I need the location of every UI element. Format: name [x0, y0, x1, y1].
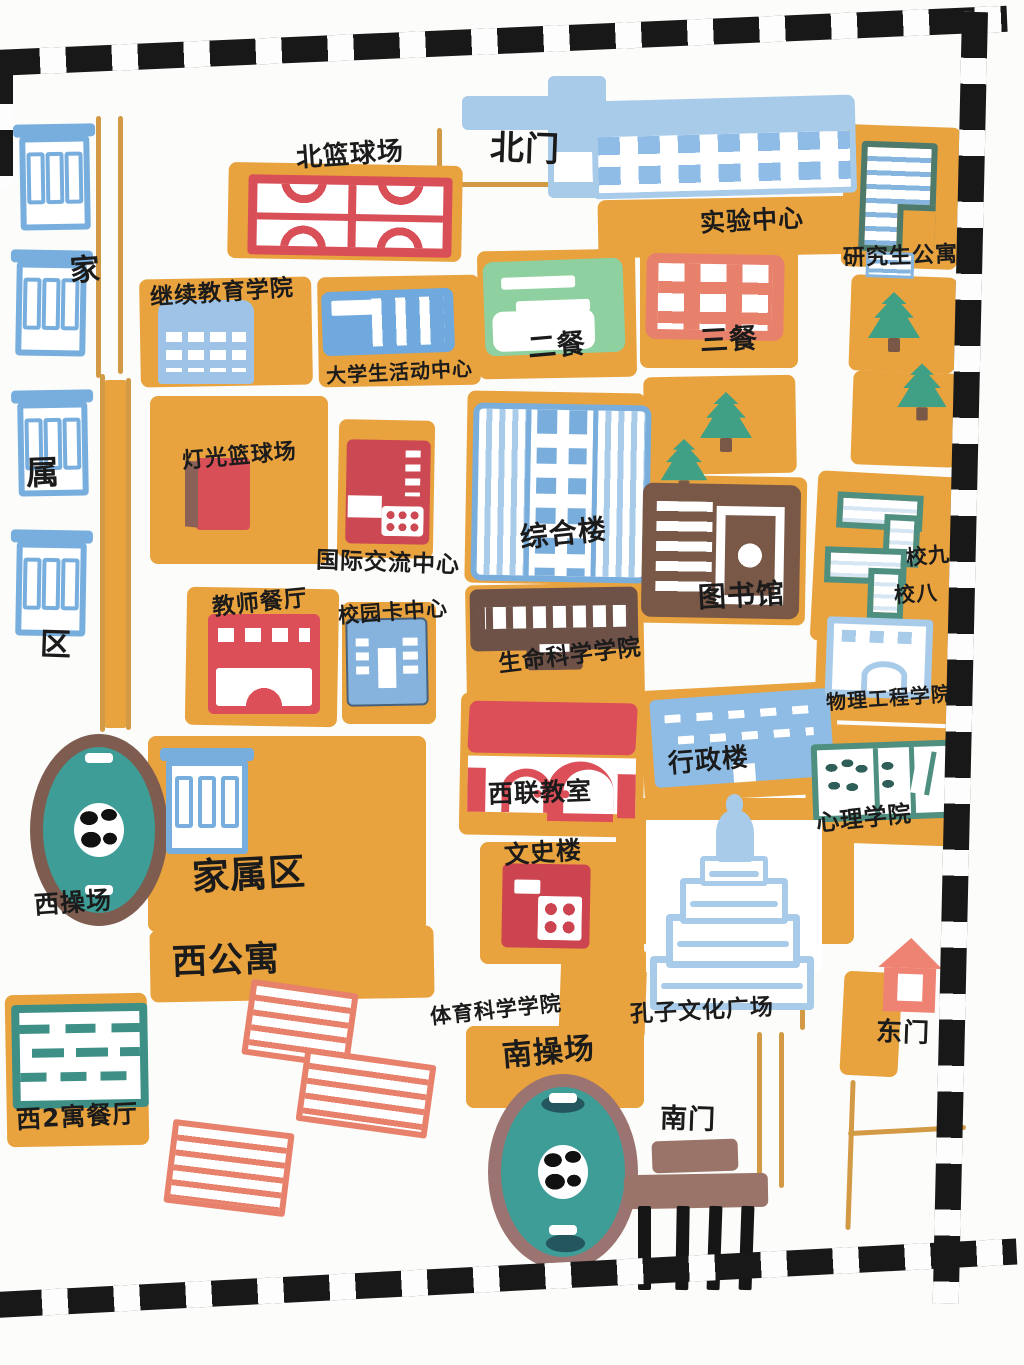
wenshi-building — [501, 863, 590, 949]
window — [65, 152, 84, 204]
label-north-gate: 北门 — [489, 131, 560, 167]
campus-card-building — [347, 619, 426, 704]
tree — [700, 392, 752, 452]
window — [22, 558, 41, 610]
road-median — [105, 380, 126, 728]
label-sports-science: 体育科学学院 — [429, 993, 562, 1028]
campus-map: 北篮球场 北门 实验中心 研究生公寓 继续教育学院 大学生活动中心 二餐 三餐 … — [0, 0, 1024, 1365]
gate-roof — [651, 1139, 738, 1174]
road — [757, 1032, 762, 1194]
window — [45, 152, 64, 204]
tree-crown — [868, 292, 920, 338]
label-administration: 行政楼 — [667, 745, 750, 778]
north-basketball-court — [247, 174, 452, 258]
label-west-union: 西联教室 — [488, 778, 593, 807]
label-west-apartments: 西公寓 — [171, 942, 280, 981]
tree-trunk — [916, 407, 927, 420]
label-dorm9: 校九 — [905, 544, 951, 569]
gate-roof — [878, 937, 943, 969]
tree — [897, 364, 946, 421]
map-border-left — [0, 58, 13, 188]
window — [42, 278, 61, 330]
continuing-education-building — [158, 300, 254, 384]
apartment-building — [19, 135, 91, 230]
label-family-char-2: 属 — [25, 455, 60, 489]
graduate-apartments-building — [858, 141, 938, 254]
label-dining2: 二餐 — [527, 330, 587, 363]
road — [779, 1032, 784, 1188]
window — [175, 776, 193, 828]
label-south-playground: 南操场 — [501, 1034, 596, 1072]
family-area-apartment — [166, 760, 248, 854]
tree — [868, 292, 920, 352]
awning — [467, 701, 638, 756]
south-playground-oval — [488, 1074, 638, 1270]
confucius-statue — [716, 810, 754, 862]
apartment-building — [15, 541, 87, 636]
experiment-center-building — [591, 95, 858, 206]
road — [126, 378, 131, 730]
label-dining3: 三餐 — [699, 325, 758, 356]
label-family-area: 家属区 — [191, 853, 307, 896]
window — [221, 776, 239, 828]
label-library: 图书馆 — [697, 580, 785, 613]
east-wing — [596, 411, 646, 578]
international-exchange-building — [345, 439, 431, 544]
road — [96, 116, 101, 378]
label-east-gate: 东门 — [876, 1019, 931, 1047]
west-wing — [477, 409, 527, 576]
facade — [592, 131, 858, 200]
window — [22, 278, 41, 330]
east-gate-structure — [877, 937, 944, 1013]
west2-dining-building — [11, 1003, 149, 1109]
label-north-basketball-court: 北篮球场 — [295, 138, 405, 171]
window — [61, 558, 80, 610]
label-west2-dining: 西2寓餐厅 — [15, 1101, 139, 1132]
road — [845, 1080, 855, 1230]
tree-crown — [661, 439, 708, 480]
label-wenshi: 文史楼 — [503, 837, 583, 867]
map-border-top — [0, 6, 1008, 76]
label-confucius-square: 孔子文化广场 — [629, 996, 774, 1027]
tree-crown — [700, 392, 752, 438]
tree-trunk — [720, 438, 732, 452]
tree-trunk — [888, 338, 900, 352]
window — [63, 418, 82, 470]
student-activity-center-building — [321, 288, 455, 357]
map-border-bottom — [0, 1239, 1017, 1318]
label-south-gate: 南门 — [660, 1105, 717, 1134]
gate-beam — [624, 1173, 769, 1210]
window — [26, 152, 45, 204]
label-dorm8: 校八 — [893, 582, 938, 606]
label-experiment-center: 实验中心 — [699, 205, 804, 235]
label-intl-exchange: 国际交流中心 — [316, 549, 461, 577]
gate-body — [883, 967, 937, 1013]
window — [198, 776, 216, 828]
road — [118, 116, 123, 374]
tree-crown — [897, 364, 946, 408]
teachers-dining-building — [208, 614, 320, 714]
label-family-char-1: 家 — [69, 255, 102, 287]
apartment-row — [163, 1119, 294, 1217]
label-family-char-3: 区 — [39, 629, 72, 661]
window — [42, 558, 61, 610]
label-west-playground: 西操场 — [33, 887, 113, 917]
label-graduate-apartments: 研究生公寓 — [843, 244, 959, 270]
apartment-row — [295, 1047, 436, 1139]
comprehensive-building — [470, 402, 651, 583]
